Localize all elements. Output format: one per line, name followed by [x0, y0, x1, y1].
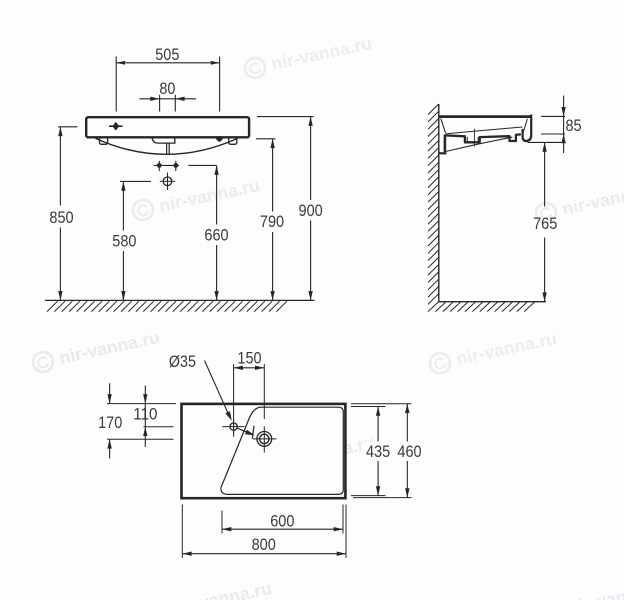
- svg-text:460: 460: [397, 442, 421, 461]
- svg-text:80: 80: [159, 79, 175, 98]
- svg-text:170: 170: [98, 413, 122, 432]
- svg-text:850: 850: [49, 208, 73, 227]
- svg-text:505: 505: [155, 45, 179, 64]
- svg-text:580: 580: [112, 232, 136, 251]
- svg-text:765: 765: [533, 214, 557, 233]
- svg-text:150: 150: [237, 349, 261, 368]
- svg-text:85: 85: [565, 116, 581, 135]
- svg-text:Ø35: Ø35: [169, 352, 196, 371]
- svg-text:435: 435: [366, 442, 390, 461]
- svg-text:660: 660: [204, 226, 228, 245]
- svg-text:790: 790: [260, 212, 284, 231]
- svg-text:600: 600: [270, 511, 294, 530]
- svg-text:900: 900: [299, 201, 323, 220]
- svg-text:800: 800: [252, 535, 276, 554]
